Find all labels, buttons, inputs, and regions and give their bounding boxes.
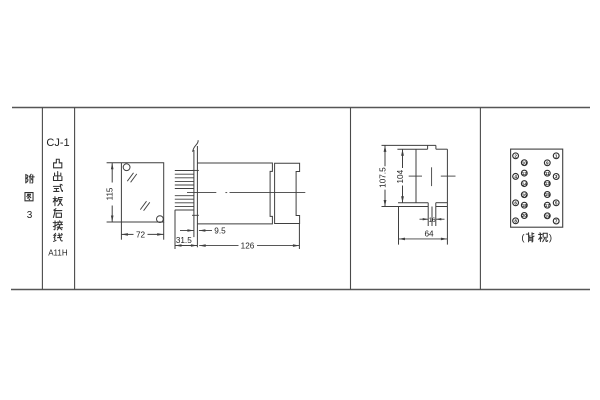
svg-text:126: 126 <box>241 242 255 251</box>
svg-text:CJ-1: CJ-1 <box>46 137 69 149</box>
svg-text:104: 104 <box>396 169 405 183</box>
svg-text:3: 3 <box>555 174 558 179</box>
svg-text:15: 15 <box>545 192 551 197</box>
svg-text:9.5: 9.5 <box>214 227 226 236</box>
svg-text:16: 16 <box>428 217 436 224</box>
svg-text:17: 17 <box>545 203 551 208</box>
svg-text:64: 64 <box>424 229 434 238</box>
svg-text:20: 20 <box>522 213 528 218</box>
svg-text:14: 14 <box>522 181 528 186</box>
svg-text:9: 9 <box>546 161 549 166</box>
svg-text:12: 12 <box>522 171 528 176</box>
svg-text:7: 7 <box>555 219 558 224</box>
svg-text:4: 4 <box>514 174 517 179</box>
svg-text:3: 3 <box>27 210 33 221</box>
svg-text:16: 16 <box>522 192 528 197</box>
svg-text:19: 19 <box>545 214 551 219</box>
svg-text:A11H: A11H <box>48 248 68 257</box>
svg-text:8: 8 <box>514 219 517 224</box>
svg-text:115: 115 <box>106 187 115 200</box>
svg-text:6: 6 <box>514 201 517 206</box>
svg-text:11: 11 <box>545 171 550 176</box>
svg-text:72: 72 <box>136 230 146 239</box>
svg-text:): ) <box>549 233 552 244</box>
svg-text:10: 10 <box>522 160 528 165</box>
svg-text:31.5: 31.5 <box>176 236 192 245</box>
svg-text:5: 5 <box>555 201 558 206</box>
svg-text:13: 13 <box>545 181 551 186</box>
svg-text:18: 18 <box>522 203 528 208</box>
svg-text:2: 2 <box>514 154 517 159</box>
svg-text:107.5: 107.5 <box>378 167 387 188</box>
svg-text:1: 1 <box>555 154 558 159</box>
